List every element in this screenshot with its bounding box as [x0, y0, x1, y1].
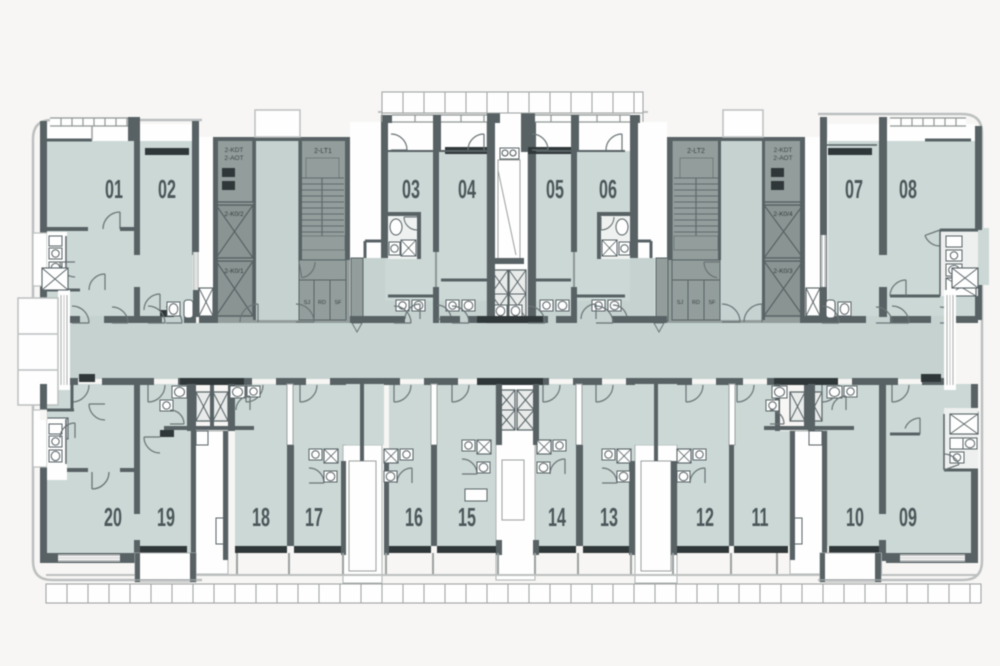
svg-text:2-KDT: 2-KDT [774, 147, 793, 154]
svg-text:04: 04 [458, 174, 476, 204]
svg-text:SF: SF [334, 300, 342, 306]
svg-text:SF: SF [708, 300, 716, 306]
svg-text:05: 05 [546, 174, 564, 204]
svg-text:11: 11 [751, 502, 768, 532]
svg-text:2-KDT: 2-KDT [225, 147, 244, 154]
svg-text:09: 09 [899, 502, 917, 532]
svg-text:13: 13 [600, 502, 618, 532]
svg-text:2-K0/4: 2-K0/4 [773, 211, 793, 218]
svg-text:03: 03 [402, 174, 420, 204]
svg-text:2-LT2: 2-LT2 [687, 148, 705, 155]
svg-text:01: 01 [105, 174, 123, 204]
svg-text:14: 14 [548, 502, 566, 532]
svg-text:08: 08 [899, 174, 917, 204]
svg-text:SJ: SJ [304, 300, 311, 306]
svg-text:2-K0/3: 2-K0/3 [773, 268, 793, 275]
svg-text:17: 17 [305, 502, 323, 532]
svg-text:2-LT1: 2-LT1 [314, 148, 332, 155]
svg-text:07: 07 [845, 174, 863, 204]
svg-text:18: 18 [252, 502, 270, 532]
svg-text:16: 16 [405, 502, 423, 532]
svg-text:SJ: SJ [677, 300, 684, 306]
svg-text:RD: RD [692, 300, 700, 306]
svg-text:2-K0/2: 2-K0/2 [224, 211, 244, 218]
svg-text:06: 06 [599, 174, 617, 204]
svg-text:2-AOT: 2-AOT [224, 155, 243, 162]
svg-text:20: 20 [104, 502, 122, 532]
svg-text:10: 10 [846, 502, 864, 532]
svg-text:12: 12 [696, 502, 714, 532]
svg-text:2-K0/1: 2-K0/1 [224, 268, 244, 275]
svg-text:19: 19 [157, 502, 175, 532]
svg-text:15: 15 [458, 502, 476, 532]
svg-text:RD: RD [318, 300, 326, 306]
svg-text:02: 02 [158, 174, 176, 204]
svg-text:2-AOT: 2-AOT [773, 155, 792, 162]
